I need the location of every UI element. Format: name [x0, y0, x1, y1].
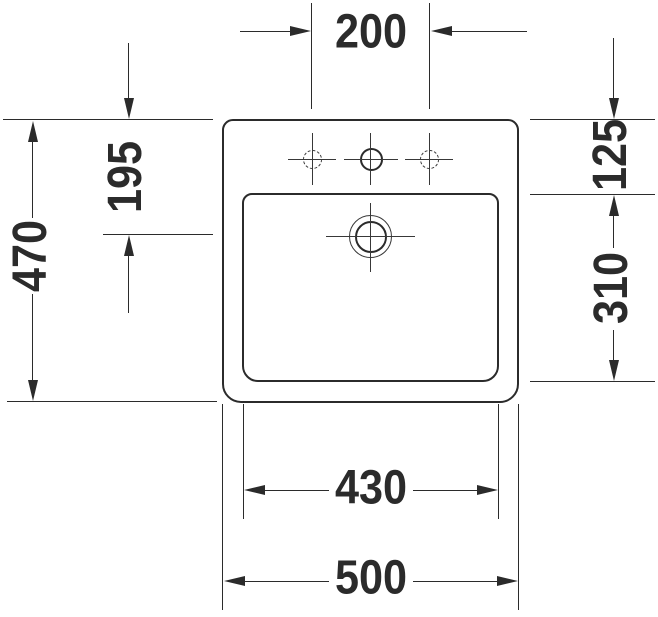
dim-195-shaft-top [128, 43, 129, 98]
dim-200-shaft-left [240, 31, 292, 32]
extension-line-bottom-left [7, 401, 217, 402]
dim-200-extension-right [429, 3, 430, 109]
dim-label-470: 470 [7, 220, 55, 292]
dim-500-shaft-left [245, 581, 329, 582]
drain-crosshair-v [370, 203, 371, 272]
dim-310-shaft-bottom [613, 330, 614, 360]
extension-line-bottom-right [530, 381, 655, 382]
dim-310-arrow-down [609, 360, 619, 381]
dim-200-shaft-right [452, 31, 527, 32]
dim-470-arrow-down [28, 380, 38, 401]
dim-label-500: 500 [335, 555, 407, 603]
faucet-right-crosshair-v [429, 133, 430, 185]
dim-200-arrow-right [431, 26, 452, 36]
dim-125-arrow-down [609, 98, 619, 119]
dim-125-arrow-up [609, 195, 619, 216]
dim-470-shaft-bottom [32, 294, 33, 380]
dim-label-200: 200 [335, 9, 407, 57]
faucet-center-crosshair-h [344, 159, 398, 160]
dim-195-arrow-down [124, 98, 134, 119]
dim-125-shaft-bottom [613, 216, 614, 248]
faucet-center-crosshair-v [370, 133, 371, 185]
dim-430-shaft-left [265, 490, 329, 491]
dim-195-shaft-bottom [128, 256, 129, 313]
technical-drawing-canvas: 200 195 470 125 310 430 500 [0, 0, 658, 617]
dim-label-125: 125 [587, 119, 635, 191]
dim-500-shaft-right [413, 581, 497, 582]
dim-430-shaft-right [413, 490, 477, 491]
dim-470-arrow-up [28, 121, 38, 142]
dim-430-extension-left [243, 404, 244, 519]
dim-125-shaft-top [613, 38, 614, 98]
dim-label-310: 310 [588, 252, 636, 324]
dim-label-195: 195 [102, 141, 150, 213]
dim-430-extension-right [498, 404, 499, 519]
dim-500-arrow-right [497, 576, 518, 586]
dim-195-arrow-up [124, 235, 134, 256]
dim-500-arrow-left [224, 576, 245, 586]
dim-200-arrow-left [290, 26, 311, 36]
dim-label-430: 430 [335, 465, 407, 513]
dim-430-arrow-right [477, 485, 498, 495]
faucet-left-crosshair-v [312, 133, 313, 185]
dim-430-arrow-left [244, 485, 265, 495]
extension-line-mid-right-125 [530, 194, 655, 195]
dim-500-extension-right [518, 404, 519, 610]
dim-470-shaft-top [32, 142, 33, 218]
dim-200-extension-left [311, 3, 312, 109]
extension-line-mid-left-195 [103, 234, 213, 235]
